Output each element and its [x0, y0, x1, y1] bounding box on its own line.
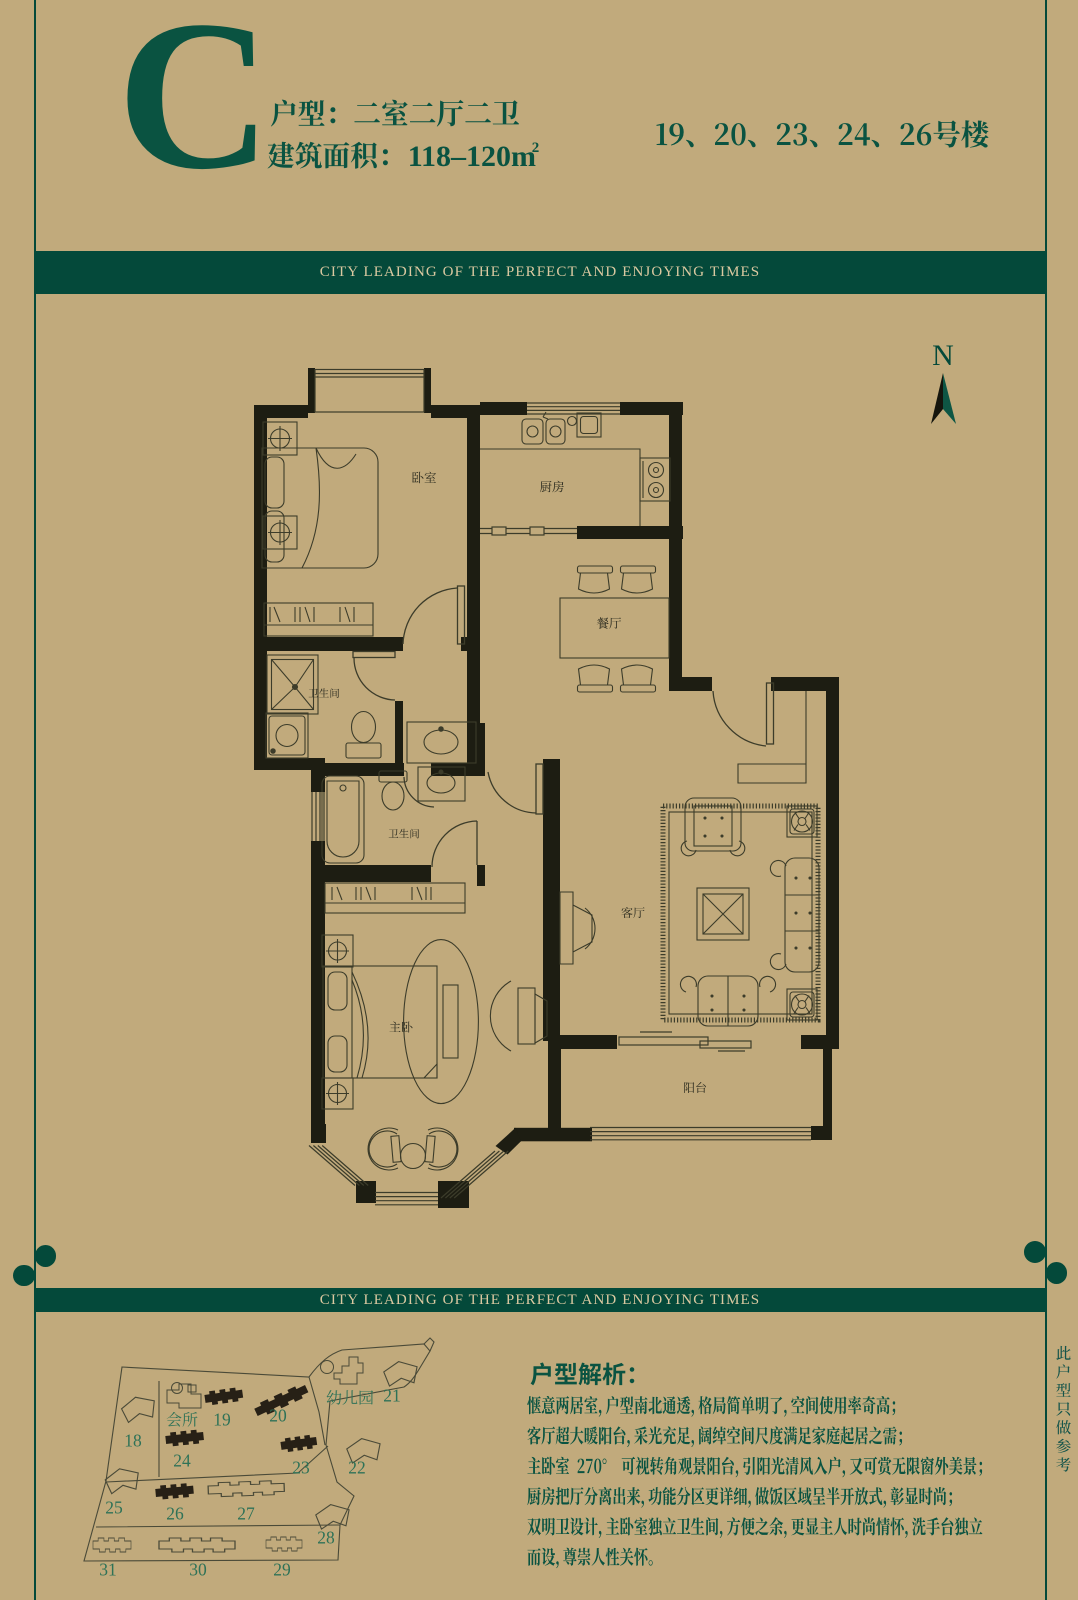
svg-text:24: 24 — [173, 1451, 191, 1471]
svg-text:22: 22 — [348, 1458, 366, 1478]
svg-text:29: 29 — [273, 1560, 291, 1580]
svg-text:26: 26 — [166, 1504, 184, 1524]
svg-text:25: 25 — [105, 1498, 123, 1518]
svg-text:31: 31 — [99, 1560, 117, 1580]
svg-text:18: 18 — [124, 1431, 142, 1451]
svg-text:2: 2 — [532, 140, 540, 156]
svg-text:118–120m: 118–120m — [408, 140, 536, 173]
svg-text:20: 20 — [269, 1406, 287, 1426]
svg-text:27: 27 — [237, 1504, 255, 1524]
svg-text:23: 23 — [292, 1458, 310, 1478]
svg-text:28: 28 — [317, 1528, 335, 1548]
svg-text:30: 30 — [189, 1560, 207, 1580]
svg-text:21: 21 — [383, 1386, 401, 1406]
svg-text:N: N — [932, 339, 954, 372]
svg-text:19: 19 — [213, 1410, 231, 1430]
